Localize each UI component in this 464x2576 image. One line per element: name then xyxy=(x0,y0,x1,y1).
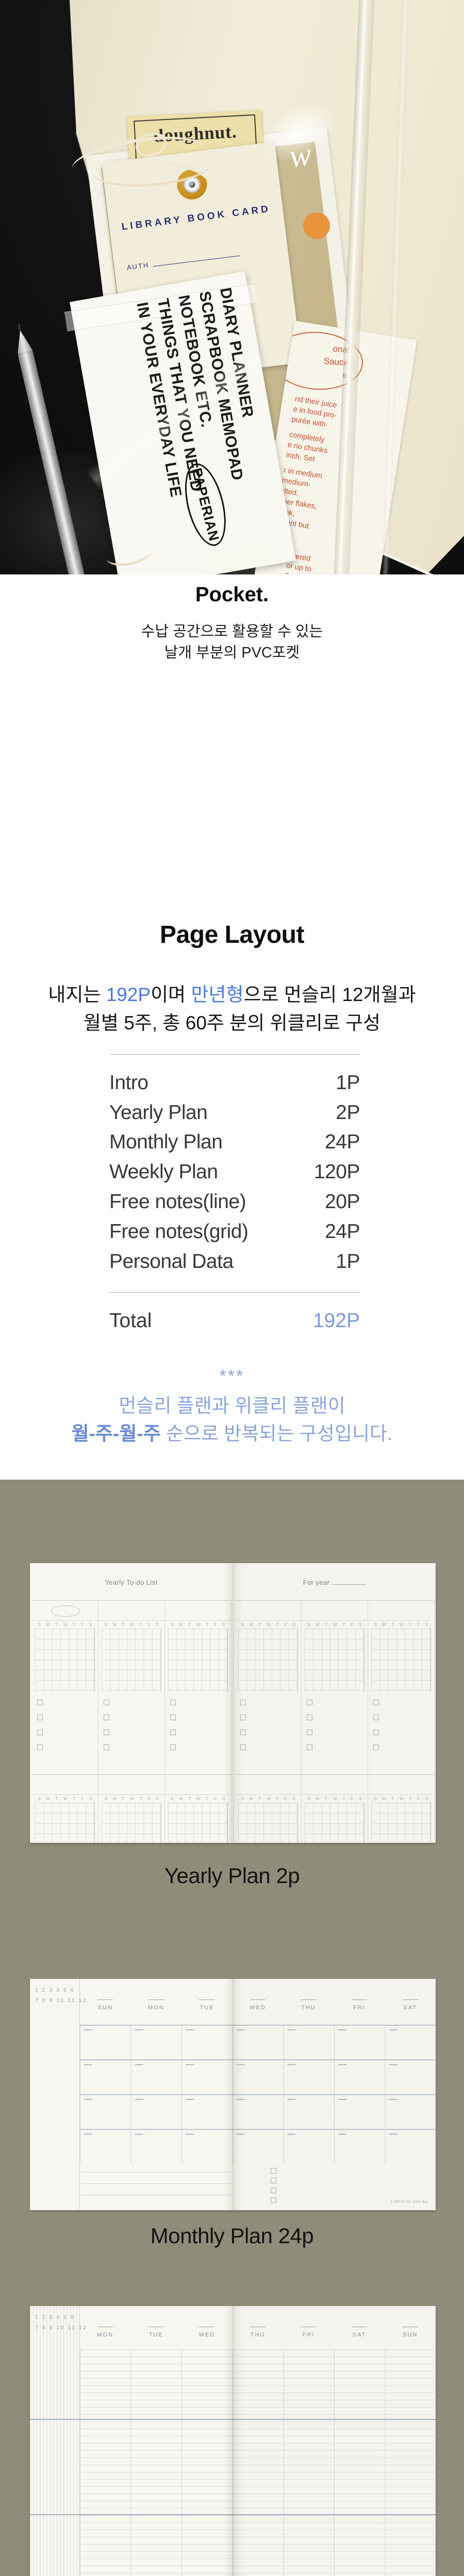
product-detail-page: w doughnut. buy 3 get 1 f LIBRARY BOOK C… xyxy=(0,0,464,2576)
page-count-table: Intro 1P Yearly Plan 2P Monthly Plan 24P… xyxy=(109,1068,360,1277)
month-cell: SMTWTFS xyxy=(302,1774,368,1843)
info-section: Pocket. 수납 공간으로 활용할 수 있는 날개 부분의 PVC포켓 Pa… xyxy=(0,574,464,1480)
spread-fold xyxy=(224,2306,242,2576)
row-value: 1P xyxy=(336,1072,360,1094)
page-layout-intro: 내지는 192P이며 만년형으로 먼슬리 12개월과 월별 5주, 총 60주 … xyxy=(0,980,464,1037)
monthly-grid xyxy=(80,2025,436,2164)
month-cell: SMTWTFS xyxy=(368,1600,435,1774)
pocket-heading: Pocket. xyxy=(0,583,464,606)
row-label: Free notes(grid) xyxy=(109,1221,248,1243)
mini-calendar-grid xyxy=(35,1629,95,1691)
day-column-header: TUE xyxy=(131,2306,182,2349)
row-value: 24P xyxy=(325,1131,360,1154)
table-row: Weekly Plan 120P xyxy=(109,1157,360,1187)
author-field: AUTH xyxy=(126,250,241,272)
spread-fold xyxy=(224,1979,242,2210)
stamp-oval xyxy=(51,1605,80,1617)
lists-footnote: LISTS to live by xyxy=(391,2199,428,2204)
monthly-plan-photo: 1 2 3 4 5 6 7 8 9 10 11 12 SUNMONTUEWEDT… xyxy=(30,1979,436,2210)
row-value: 20P xyxy=(325,1191,360,1213)
day-column-header: SAT xyxy=(385,1979,436,2025)
total-value: 192P xyxy=(313,1310,360,1332)
month-cell: SMTWTFS xyxy=(32,1774,98,1843)
page-gallery: Yearly To-do List SMTWTFS SMTWTFS xyxy=(0,1480,464,2576)
table-row: Monthly Plan 24P xyxy=(109,1128,360,1158)
caption-monthly: Monthly Plan 24p xyxy=(0,2224,464,2252)
row-value: 120P xyxy=(314,1161,360,1183)
monthly-notes-lines xyxy=(81,2172,231,2206)
table-row: Intro 1P xyxy=(109,1068,360,1098)
monthly-checkboxes xyxy=(271,2168,276,2203)
month-cell: SMTWTFS xyxy=(302,1600,368,1774)
row-label: Personal Data xyxy=(109,1250,234,1273)
table-row: Personal Data 1P xyxy=(109,1247,360,1277)
intro-line-2: 월별 5주, 총 60주 분의 위클리로 구성 xyxy=(0,1009,464,1037)
yearly-grid: SMTWTFS SMTWTFS SMTWTFS xyxy=(235,1600,435,1843)
yearly-right-title: For year xyxy=(233,1579,436,1586)
year-blank-line xyxy=(333,1584,366,1585)
table-divider-top xyxy=(109,1054,360,1055)
composition-note: 먼슬리 플랜과 위클리 플랜이 월-주-월-주 순으로 반복되는 구성입니다. xyxy=(0,1392,464,1448)
month-cell: SMTWTFS xyxy=(165,1774,231,1843)
row-label: Free notes(line) xyxy=(109,1191,246,1213)
row-label: Monthly Plan xyxy=(109,1131,222,1154)
row-label: Intro xyxy=(109,1072,148,1094)
weekly-grid xyxy=(80,2349,436,2576)
month-cell: SMTWTFS xyxy=(235,1774,302,1843)
row-value: 24P xyxy=(325,1221,360,1243)
row-label: Weekly Plan xyxy=(109,1161,218,1183)
month-number-strip: 1 2 3 4 5 6 7 8 9 10 11 12 xyxy=(30,1979,80,2210)
caption-yearly: Yearly Plan 2p xyxy=(0,1863,464,1892)
yearly-plan-photo: Yearly To-do List SMTWTFS SMTWTFS xyxy=(30,1563,436,1843)
table-row: Free notes(line) 20P xyxy=(109,1187,360,1217)
orange-sticker xyxy=(303,212,330,239)
monthly-day-header: SUNMONTUEWEDTHUFRISAT xyxy=(80,1979,436,2025)
highlight-192p: 192P xyxy=(106,984,151,1005)
day-column-header: SUN xyxy=(80,1979,131,2025)
day-column-header: FRI xyxy=(334,1979,385,2025)
yearly-left-page: Yearly To-do List SMTWTFS SMTWTFS xyxy=(30,1563,233,1843)
spread-fold xyxy=(224,1563,242,1843)
month-cell: SMTWTFS xyxy=(98,1600,165,1774)
total-row: Total 192P xyxy=(109,1310,360,1332)
page-layout-heading: Page Layout xyxy=(0,921,464,949)
total-label: Total xyxy=(109,1310,152,1332)
yearly-right-page: For year SMTWTFS SMTWTFS xyxy=(233,1563,436,1843)
pocket-description: 수납 공간으로 활용할 수 있는 날개 부분의 PVC포켓 xyxy=(0,621,464,664)
month-cell: SMTWTFS xyxy=(165,1600,231,1774)
note-bold-segment: 월-주-월-주 xyxy=(72,1423,161,1444)
intro-line-1: 내지는 192P이며 만년형으로 먼슬리 12개월과 xyxy=(0,980,464,1009)
row-value: 2P xyxy=(336,1101,360,1124)
weekly-plan-photo: 1 2 3 4 5 6 7 8 9 10 11 12 MONTUEWEDTHUF… xyxy=(30,2306,436,2576)
hero-photo: w doughnut. buy 3 get 1 f LIBRARY BOOK C… xyxy=(0,0,464,574)
month-cell: SMTWTFS xyxy=(368,1774,435,1843)
highlight-perpetual: 만년형 xyxy=(191,984,244,1005)
row-value: 1P xyxy=(336,1250,360,1273)
yearly-left-title: Yearly To-do List xyxy=(30,1579,233,1586)
day-column-header: THU xyxy=(283,1979,334,2025)
todo-checkboxes xyxy=(32,1691,98,1750)
table-row: Free notes(grid) 24P xyxy=(109,1217,360,1247)
row-label: Yearly Plan xyxy=(109,1101,207,1124)
day-column-header: SAT xyxy=(334,2306,385,2349)
index-line-texture xyxy=(30,2306,79,2576)
weekly-day-header: MONTUEWEDTHUFRISATSUN xyxy=(80,2306,436,2349)
table-row: Yearly Plan 2P xyxy=(109,1098,360,1128)
day-column-header: MON xyxy=(131,1979,182,2025)
stars-separator: *** xyxy=(0,1366,464,1386)
library-card-title: LIBRARY BOOK CARD xyxy=(109,202,283,234)
month-cell: SMTWTFS xyxy=(235,1600,302,1774)
month-cell: SMTWTFS xyxy=(32,1600,98,1774)
yearly-grid: SMTWTFS SMTWTFS SMTWTFS xyxy=(32,1600,231,1843)
day-column-header: SUN xyxy=(385,2306,436,2349)
table-divider-bottom xyxy=(109,1292,360,1293)
day-column-header: MON xyxy=(80,2306,131,2349)
month-cell: SMTWTFS xyxy=(98,1774,165,1843)
week-number-strip: 1 2 3 4 5 6 7 8 9 10 11 12 xyxy=(30,2306,80,2576)
day-column-header: FRI xyxy=(283,2306,334,2349)
